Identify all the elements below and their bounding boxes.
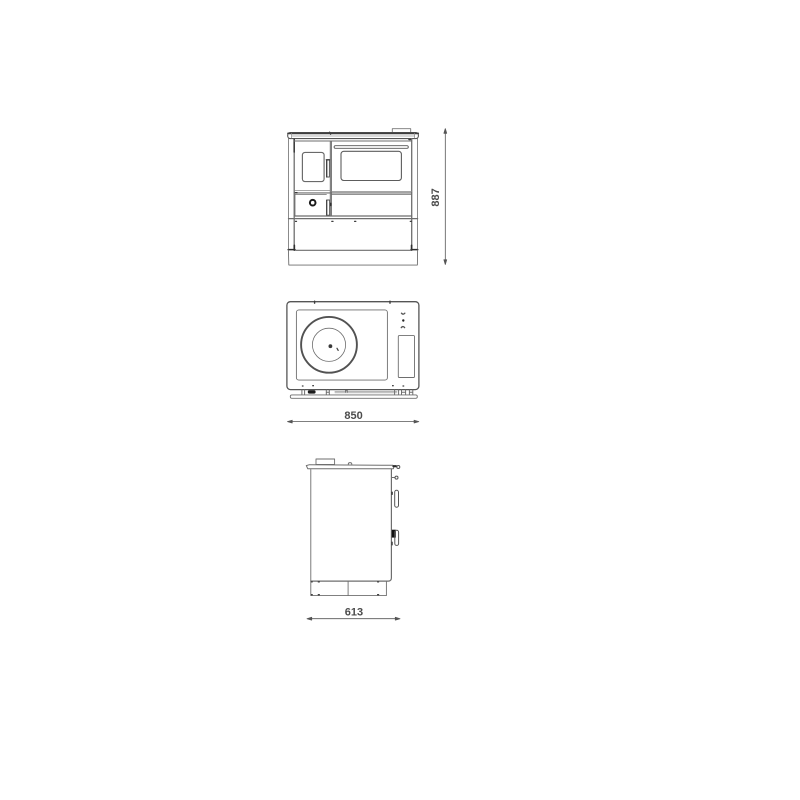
svg-text:850: 850: [344, 410, 362, 422]
svg-text:887: 887: [430, 188, 442, 206]
svg-text:613: 613: [345, 607, 363, 619]
